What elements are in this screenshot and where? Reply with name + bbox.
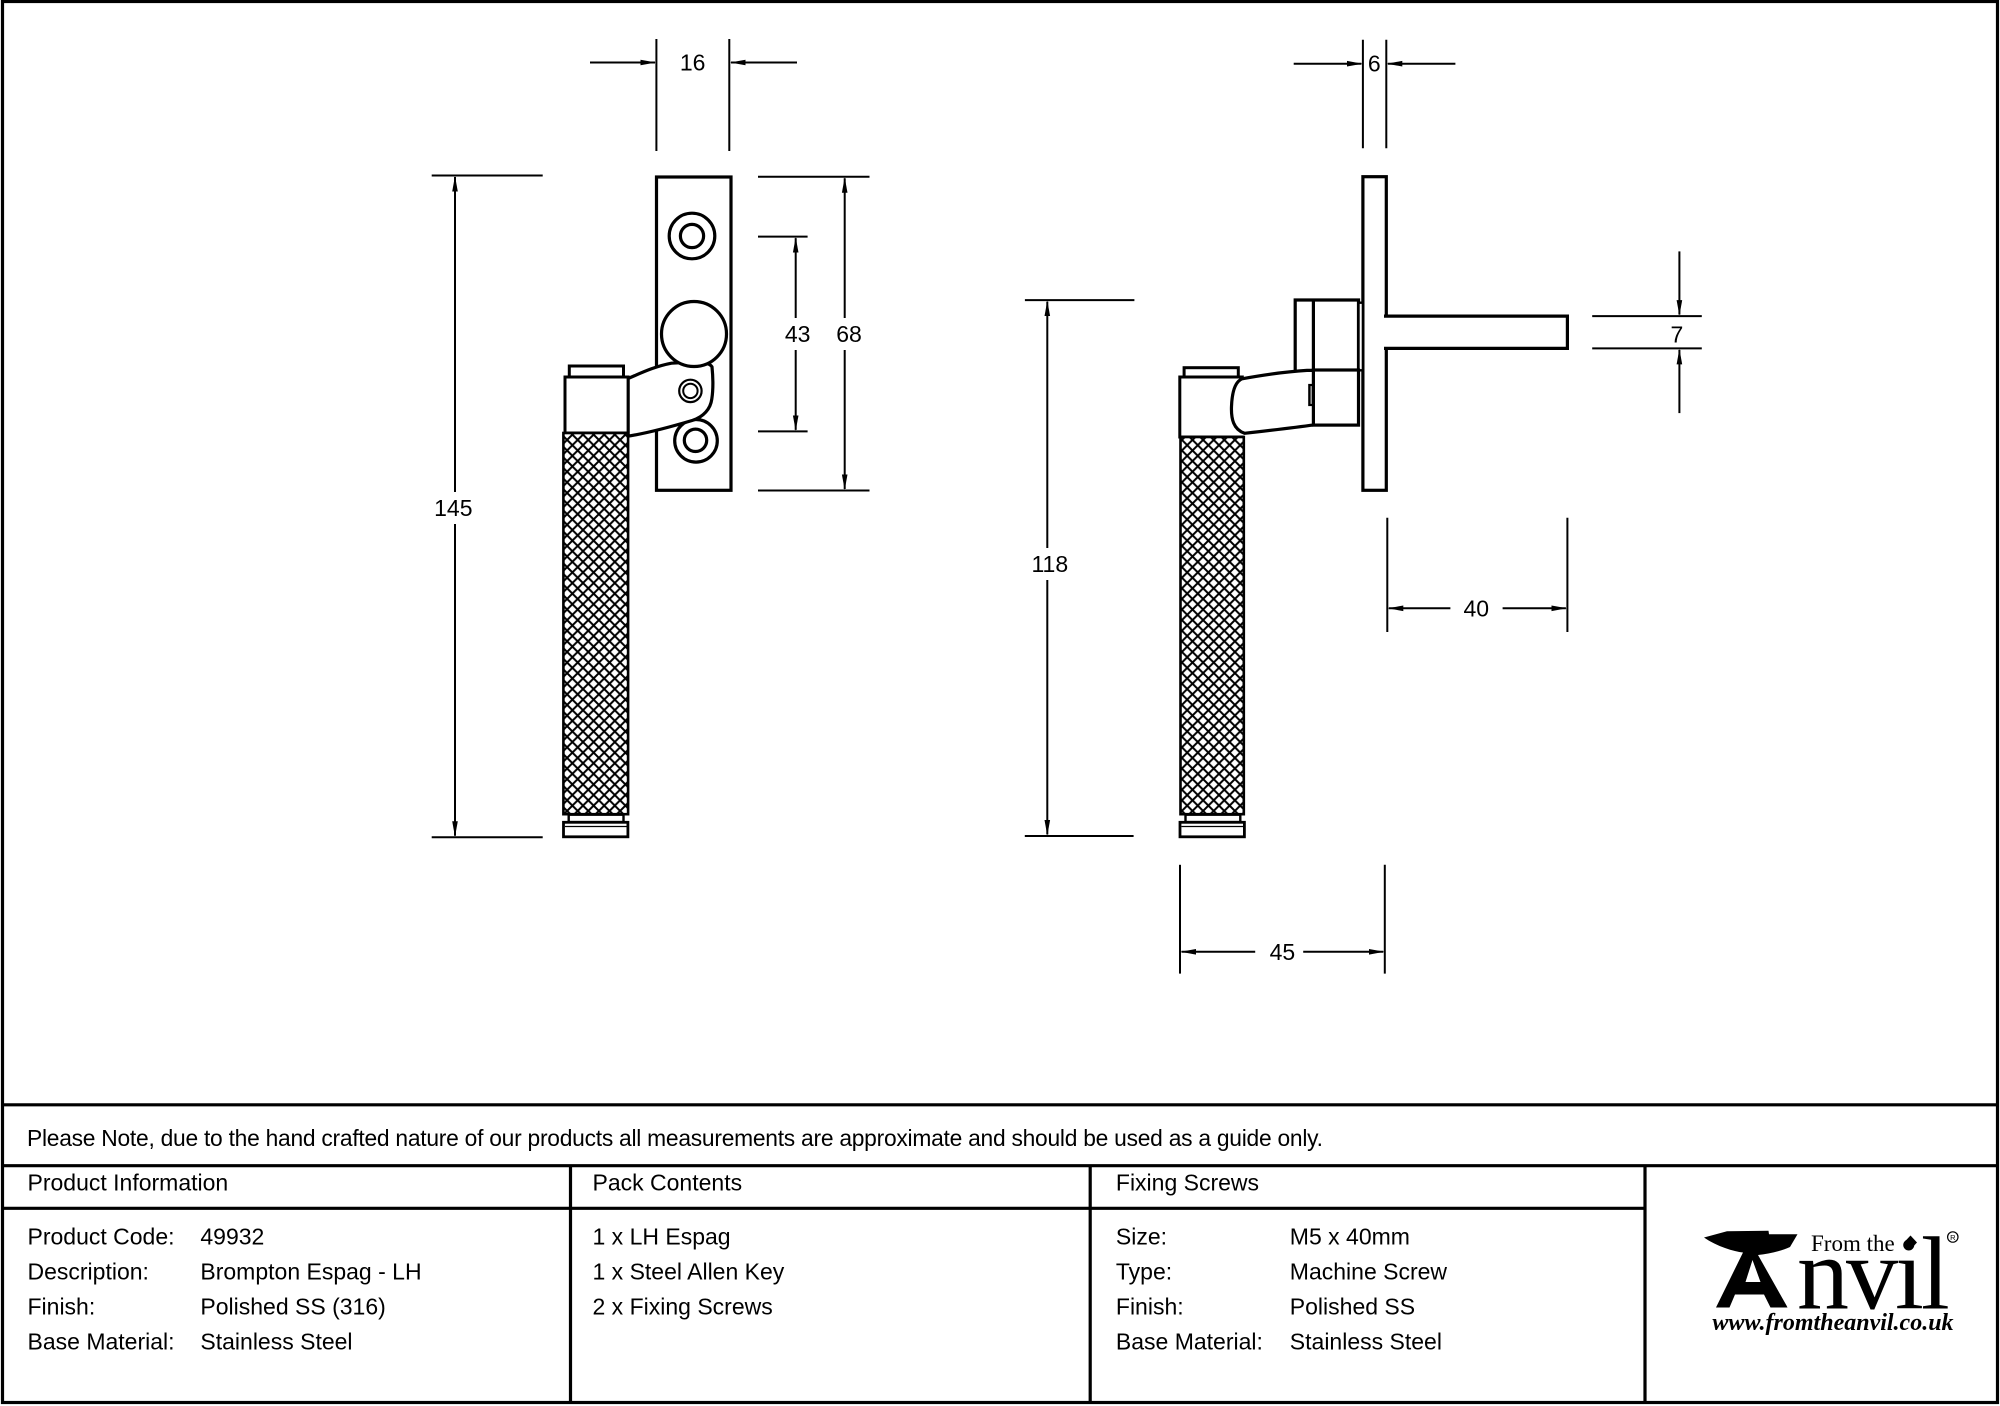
- svg-text:M5 x 40mm: M5 x 40mm: [1290, 1224, 1410, 1250]
- svg-text:Size:: Size:: [1116, 1224, 1167, 1250]
- svg-text:R: R: [1950, 1233, 1956, 1242]
- svg-text:Stainless Steel: Stainless Steel: [200, 1329, 352, 1355]
- svg-text:Please Note, due to the hand c: Please Note, due to the hand crafted nat…: [27, 1125, 1323, 1151]
- svg-text:Polished SS (316): Polished SS (316): [200, 1294, 385, 1320]
- svg-text:Brompton Espag - LH: Brompton Espag - LH: [200, 1259, 421, 1285]
- svg-text:118: 118: [1031, 551, 1068, 577]
- svg-text:Fixing Screws: Fixing Screws: [1116, 1170, 1259, 1196]
- svg-text:6: 6: [1368, 51, 1381, 77]
- svg-text:43: 43: [785, 321, 811, 347]
- svg-text:1 x LH Espag: 1 x LH Espag: [593, 1224, 731, 1250]
- svg-text:Base Material:: Base Material:: [28, 1329, 175, 1355]
- svg-text:Product Code:: Product Code:: [28, 1224, 175, 1250]
- svg-text:Base Material:: Base Material:: [1116, 1329, 1263, 1355]
- svg-text:Pack Contents: Pack Contents: [593, 1170, 743, 1196]
- svg-text:45: 45: [1270, 939, 1296, 965]
- svg-text:From the: From the: [1811, 1231, 1895, 1256]
- svg-text:145: 145: [434, 495, 472, 521]
- svg-text:Product Information: Product Information: [28, 1170, 229, 1196]
- svg-text:16: 16: [680, 50, 706, 76]
- svg-text:68: 68: [836, 321, 862, 347]
- svg-text:40: 40: [1464, 595, 1490, 621]
- svg-text:Polished SS: Polished SS: [1290, 1294, 1415, 1320]
- svg-text:Stainless Steel: Stainless Steel: [1290, 1329, 1442, 1355]
- svg-text:Finish:: Finish:: [28, 1294, 96, 1320]
- svg-text:Type:: Type:: [1116, 1259, 1172, 1285]
- svg-text:1 x Steel Allen Key: 1 x Steel Allen Key: [593, 1259, 785, 1285]
- svg-text:2 x Fixing Screws: 2 x Fixing Screws: [593, 1294, 773, 1320]
- svg-text:Description:: Description:: [28, 1259, 149, 1285]
- svg-text:www.fromtheanvil.co.uk: www.fromtheanvil.co.uk: [1712, 1310, 1953, 1336]
- svg-text:Finish:: Finish:: [1116, 1294, 1184, 1320]
- svg-text:49932: 49932: [200, 1224, 264, 1250]
- svg-text:7: 7: [1671, 322, 1684, 348]
- svg-text:Machine Screw: Machine Screw: [1290, 1259, 1448, 1285]
